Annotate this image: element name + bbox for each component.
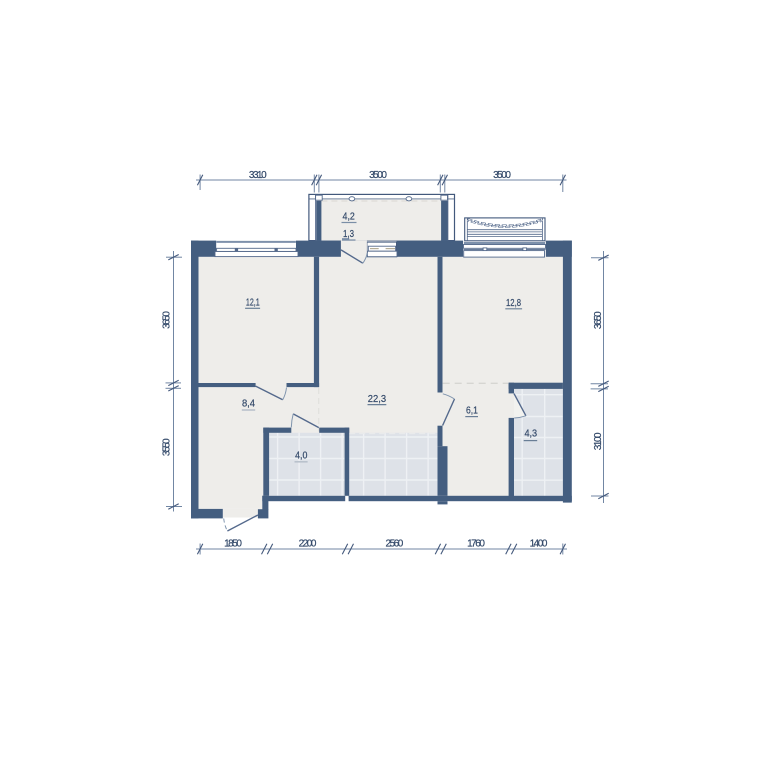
svg-text:12,8: 12,8 xyxy=(506,298,521,309)
svg-text:3100: 3100 xyxy=(593,432,604,450)
svg-text:3550: 3550 xyxy=(161,438,172,456)
svg-text:3500: 3500 xyxy=(369,170,387,181)
svg-text:1850: 1850 xyxy=(224,538,242,549)
svg-text:3500: 3500 xyxy=(493,170,511,181)
svg-text:4,2: 4,2 xyxy=(343,212,355,223)
svg-text:2200: 2200 xyxy=(299,538,317,549)
svg-text:3650: 3650 xyxy=(161,311,172,329)
svg-text:1400: 1400 xyxy=(530,538,548,549)
svg-text:12,1: 12,1 xyxy=(246,297,260,308)
svg-text:4,0: 4,0 xyxy=(295,450,307,461)
svg-text:8,4: 8,4 xyxy=(242,399,255,410)
svg-text:22,3: 22,3 xyxy=(368,394,386,405)
svg-text:6,1: 6,1 xyxy=(466,406,478,417)
svg-text:3650: 3650 xyxy=(593,311,604,329)
svg-text:2560: 2560 xyxy=(386,538,404,549)
svg-text:1,3: 1,3 xyxy=(343,229,354,240)
svg-text:3310: 3310 xyxy=(249,170,267,181)
svg-text:4,3: 4,3 xyxy=(524,429,537,440)
svg-text:1760: 1760 xyxy=(467,538,485,549)
